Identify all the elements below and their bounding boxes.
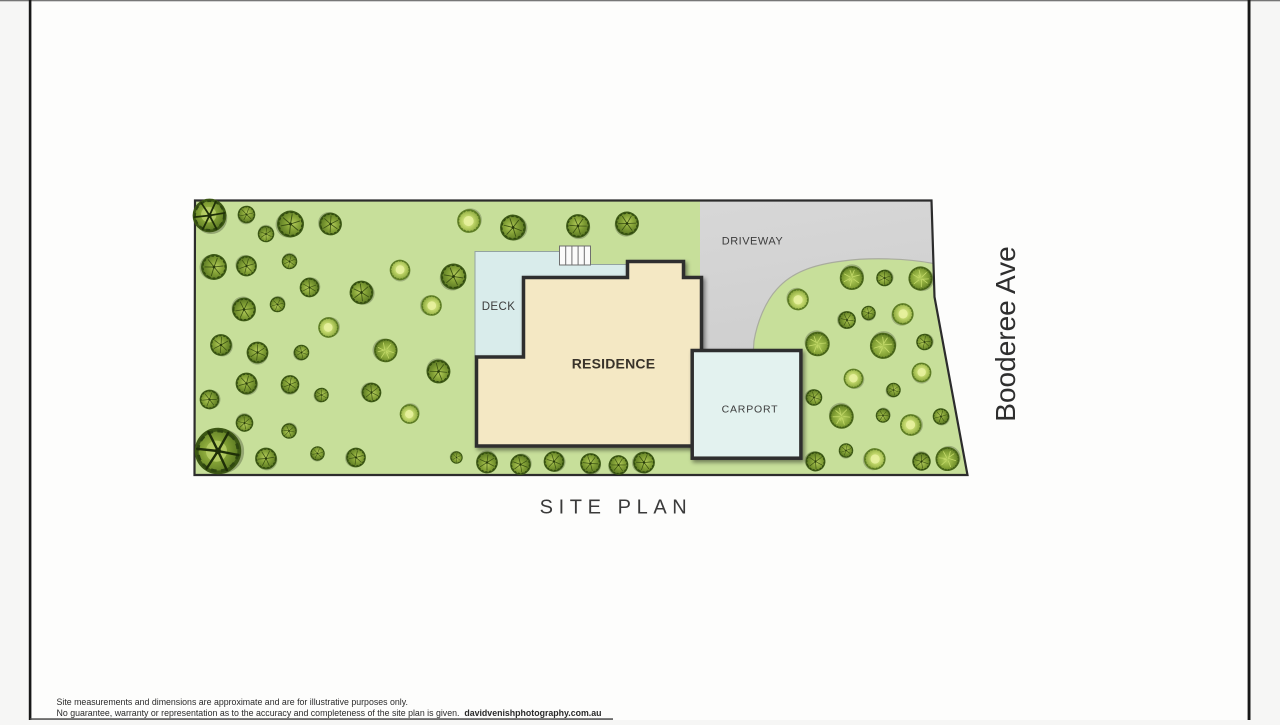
svg-text:SITE PLAN: SITE PLAN bbox=[540, 497, 693, 519]
svg-text:DECK: DECK bbox=[482, 301, 516, 313]
svg-text:Booderee Ave: Booderee Ave bbox=[990, 246, 1021, 421]
svg-text:DRIVEWAY: DRIVEWAY bbox=[722, 236, 784, 248]
svg-text:CARPORT: CARPORT bbox=[722, 404, 779, 416]
svg-text:RESIDENCE: RESIDENCE bbox=[572, 356, 655, 372]
